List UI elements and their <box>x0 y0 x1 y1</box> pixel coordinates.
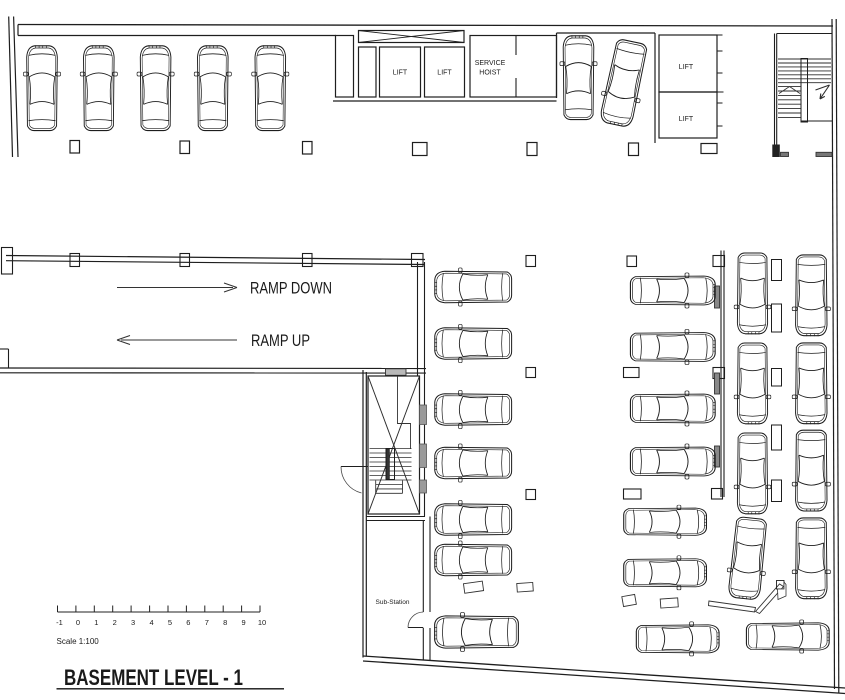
svg-text:RAMP DOWN: RAMP DOWN <box>250 280 332 298</box>
svg-text:Sub-Station: Sub-Station <box>376 599 410 606</box>
svg-text:0: 0 <box>76 618 80 627</box>
svg-text:5: 5 <box>168 618 172 627</box>
svg-text:10: 10 <box>258 618 266 627</box>
svg-text:4: 4 <box>149 618 153 627</box>
svg-text:-1: -1 <box>56 618 63 627</box>
svg-text:2: 2 <box>113 618 117 627</box>
svg-text:8: 8 <box>223 618 227 627</box>
svg-text:7: 7 <box>205 618 209 627</box>
svg-text:6: 6 <box>186 618 190 627</box>
svg-text:Scale 1:100: Scale 1:100 <box>57 637 100 646</box>
svg-text:9: 9 <box>242 618 246 627</box>
svg-text:LIFT: LIFT <box>393 70 408 77</box>
svg-text:LIFT: LIFT <box>679 116 694 123</box>
svg-text:SERVICE: SERVICE <box>475 60 506 67</box>
svg-text:HOIST: HOIST <box>479 70 501 77</box>
svg-text:LIFT: LIFT <box>679 64 694 71</box>
svg-text:1: 1 <box>94 618 98 627</box>
svg-text:LIFT: LIFT <box>437 70 452 77</box>
svg-text:3: 3 <box>131 618 135 627</box>
svg-text:BASEMENT LEVEL - 1: BASEMENT LEVEL - 1 <box>64 665 243 690</box>
svg-text:RAMP UP: RAMP UP <box>251 332 310 350</box>
